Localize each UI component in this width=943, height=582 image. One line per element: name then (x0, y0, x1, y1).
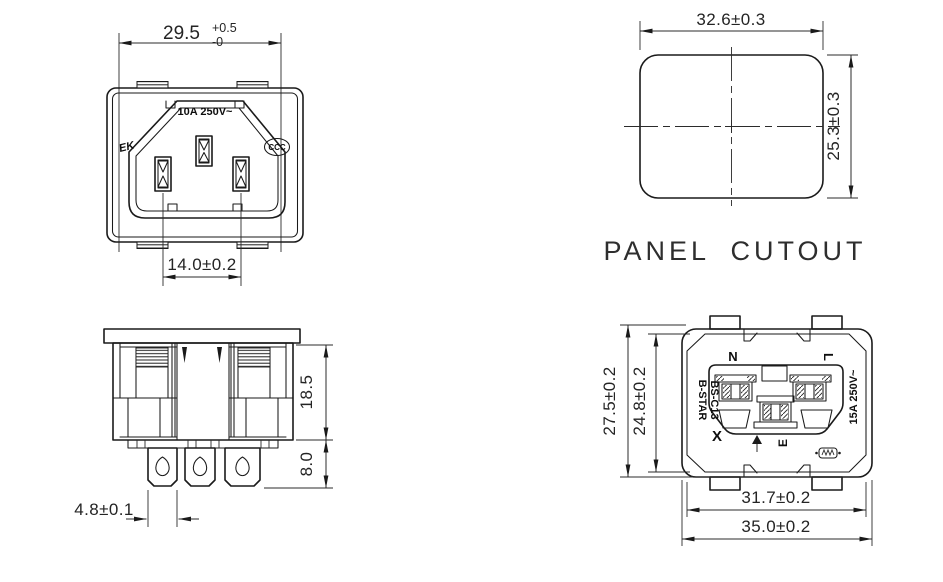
contact-hatch (791, 376, 799, 381)
latch-pocket (797, 465, 810, 477)
technical-drawing-sheet: 29.5 +0.5 -0 10A 250V~ EK CCC (0, 0, 943, 582)
dim-cutout-height-value: 25.3±0.3 (824, 91, 843, 160)
contact-hatch (747, 376, 755, 381)
pin-earth (196, 136, 212, 166)
ccc-cert-text: CCC (268, 143, 286, 152)
recess-notch (235, 101, 244, 108)
contact-hatch (781, 405, 788, 419)
snap-tab-top-left (137, 82, 168, 89)
contact-earth (754, 396, 797, 428)
terminal-hole (156, 457, 169, 476)
pin-left (155, 157, 171, 191)
dim-rear-width-inner-value: 31.7±0.2 (741, 488, 810, 507)
dim-rear-height-inner-value: 24.8±0.2 (630, 366, 649, 435)
latch-pocket (744, 329, 757, 341)
recess-notch (168, 204, 177, 211)
center-cross (725, 120, 738, 133)
drawing-canvas: 29.5 +0.5 -0 10A 250V~ EK CCC (0, 0, 943, 582)
x-marking: X (712, 428, 722, 445)
cert-mark-logo-icon (815, 448, 841, 458)
dim-front-width-tol-plus: +0.5 (212, 21, 237, 35)
dim-pin-spacing: 14.0±0.2 (163, 193, 241, 286)
dim-front-width-tol-minus: -0 (212, 35, 223, 49)
panel-cutout-view: 32.6±0.3 25.3±0.3 PANEL CUTOUT (603, 10, 866, 266)
panel-cutout-title: PANEL CUTOUT (603, 236, 866, 266)
contact-hatch (741, 385, 748, 398)
dim-terminal-length-value: 8.0 (297, 452, 316, 477)
latch-right (229, 343, 293, 440)
dim-terminal-length: 8.0 (264, 440, 333, 488)
vent-hole-left (719, 410, 750, 428)
key-notch (762, 366, 787, 381)
vent-hole-right (801, 410, 832, 428)
terminal-3 (225, 448, 260, 486)
flange-outline (104, 329, 300, 343)
contact-hatch (815, 385, 822, 398)
snap-tab-top-right (237, 82, 268, 89)
dim-body-height-value: 18.5 (297, 375, 316, 410)
front-view: 29.5 +0.5 -0 10A 250V~ EK CCC (107, 21, 303, 286)
label-line: L (821, 353, 836, 361)
inlet-recess-inner-outline (136, 108, 278, 211)
contact-hatch (723, 385, 730, 398)
dim-front-width-value: 29.5 (163, 23, 200, 44)
contact-line (790, 375, 831, 401)
ear-top-left (710, 316, 740, 329)
terminal-hole (193, 457, 206, 476)
label-neutral: N (728, 349, 737, 364)
terminal-1 (148, 448, 177, 486)
front-rating-marking: 10A 250V~ (178, 106, 234, 118)
latch-spring-hatch (136, 348, 168, 367)
rear-rating-marking: 15A 250V~ (848, 369, 860, 425)
rear-view: N L B-STAR BS-C13 15A 250V~ X E 27.5±0.2 (600, 316, 872, 546)
mold-notch (217, 347, 222, 363)
terminal-hole (236, 457, 249, 476)
terminal-2 (185, 448, 215, 486)
inlet-recess-outline (129, 101, 285, 218)
dim-rear-height-outer-value: 27.5±0.2 (600, 366, 619, 435)
latch-left (113, 343, 177, 440)
dim-body-height: 18.5 (296, 345, 333, 440)
ek-cert-mark-icon: EK (118, 139, 137, 155)
latch-pocket (797, 329, 810, 341)
ear-bottom-left (710, 477, 740, 490)
side-view: 18.5 8.0 4.8±0.1 (74, 329, 333, 527)
contact-neutral (715, 375, 756, 401)
mold-notch (182, 347, 187, 363)
dim-rear-width-inner: 31.7±0.2 (687, 482, 866, 517)
dim-cutout-width: 32.6±0.3 (640, 10, 823, 50)
dim-rear-height-inner: 24.8±0.2 (630, 334, 690, 472)
brand-marking: B-STAR (696, 380, 708, 421)
snap-tab-bottom-right (237, 242, 268, 249)
latch-pocket (744, 465, 757, 477)
dim-cutout-width-value: 32.6±0.3 (696, 10, 765, 29)
contact-hatch (822, 376, 830, 381)
model-marking: BS-C13 (708, 380, 720, 419)
dim-terminal-width: 4.8±0.1 (74, 490, 199, 527)
ear-top-right (812, 316, 842, 329)
contact-hatch (764, 405, 771, 419)
contact-hatch (797, 385, 804, 398)
terminal-base (128, 440, 278, 448)
ear-bottom-right (812, 477, 842, 490)
dim-pin-spacing-value: 14.0±0.2 (167, 255, 236, 274)
up-arrow-icon (752, 435, 762, 452)
center-ribs (172, 343, 234, 437)
pin-right (233, 157, 249, 191)
label-earth: E (776, 439, 790, 447)
dim-rear-width-outer-value: 35.0±0.2 (741, 517, 810, 536)
dim-cutout-height: 25.3±0.3 (824, 55, 858, 198)
latch-spring-hatch (238, 348, 270, 367)
dim-terminal-width-value: 4.8±0.1 (74, 500, 133, 519)
